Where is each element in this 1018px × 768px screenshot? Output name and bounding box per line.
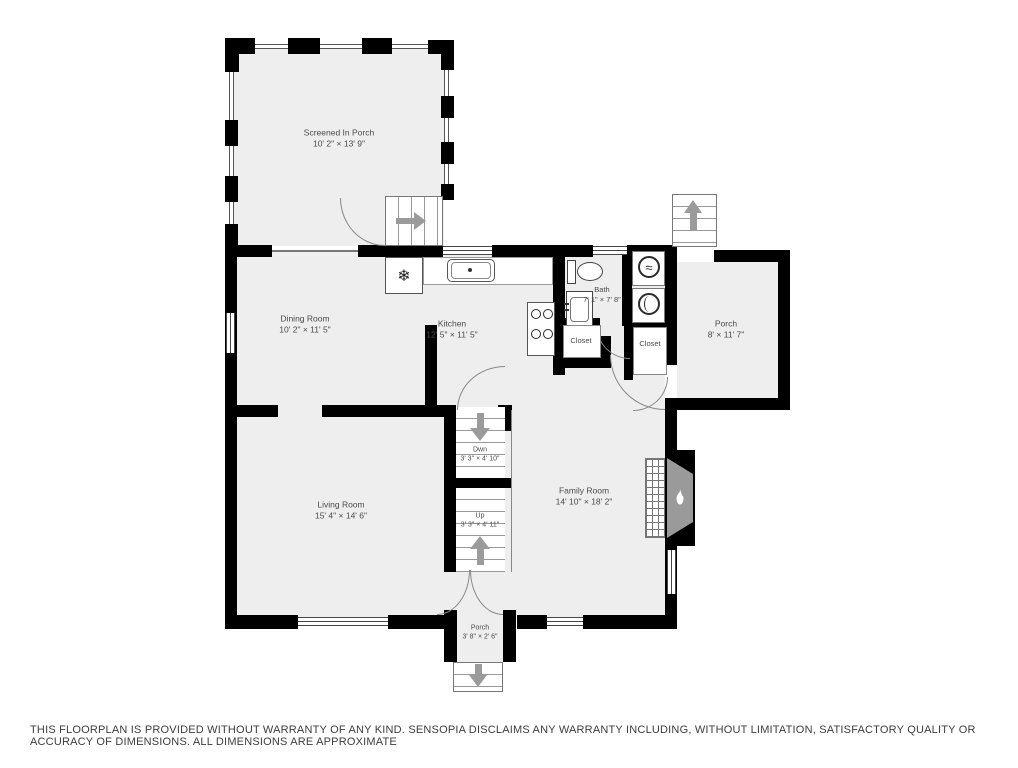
wall-side-porch-bottom [665,398,790,410]
bath-sink-faucet [564,303,569,305]
wall-front-porch-right [503,610,516,662]
window-family-bottom [547,617,583,626]
screen-wall-right [444,48,449,196]
wall-top-a [225,245,272,257]
wall-left-main [225,245,237,629]
porch-post [441,142,454,164]
opening-porch-dining [272,250,358,252]
wall-living-bottom-b [388,615,450,629]
wall-stairs-mid [444,478,512,488]
label-closet-right: Closet [639,339,660,349]
kitchen-sink-faucet [468,268,472,272]
wall-front-porch-left [444,610,457,662]
window-living-bottom [298,617,388,626]
porch-post [441,40,454,70]
label-living-room: Living Room15' 4" × 14' 6" [315,500,367,523]
porch-post [288,38,320,54]
porch-post [225,176,238,202]
flame-icon [673,489,687,507]
label-closet-left: Closet [570,336,591,346]
closet-right-interior [633,327,667,375]
label-side-porch: Porch8' × 11' 7" [708,319,745,342]
fireplace-hearth [645,458,665,538]
wall-family-bottom-a [517,615,547,629]
label-family-room: Family Room14' 10" × 18' 2" [556,486,613,509]
stove-burner [531,329,541,339]
wall-top-b [358,245,443,257]
toilet-tank [567,260,576,284]
wall-top-c [492,245,593,257]
wall-living-bottom-a [225,615,298,629]
line-stairs-family [511,410,512,572]
bath-sink-faucet [564,309,569,311]
label-stairs-down: Dwn3' 3" × 4' 10" [461,446,500,465]
porch-post [225,38,239,72]
window-dining-left [226,313,235,353]
wall-side-porch-right [778,250,790,410]
wall-bath-laundry [622,248,632,326]
porch-post [225,120,238,146]
label-front-porch: Porch3' 8" × 2' 6" [462,624,497,643]
window-kitchen [443,246,492,255]
wall-stairs-left [444,405,456,572]
stove-burner [543,309,553,319]
window-bath [593,246,627,255]
wall-family-bottom-b [583,615,677,629]
disclaimer-text: THIS FLOORPLAN IS PROVIDED WITHOUT WARRA… [30,724,1000,748]
stove-burner [543,329,553,339]
window-family-right [667,550,676,594]
screen-wall-top [238,44,430,49]
washer-icon: ≈ [638,256,660,278]
toilet-bowl [577,262,603,281]
label-dining-room: Dining Room10' 2" × 11' 5" [279,314,330,337]
label-stairs-up: Up3' 3" × 4' 11" [461,512,499,531]
floorplan-canvas: ❄ ≈ Screened In Porch10' 2" × 13' 9" Din… [0,0,1018,768]
wall-dining-living-a [225,405,278,417]
porch-post [441,96,454,118]
label-bath: Bath7' 1" × 7' 8" [583,285,621,305]
dryer-icon [638,293,660,315]
porch-post [362,38,392,54]
label-kitchen: Kitchen12' 5" × 11' 5" [426,319,477,342]
stove-burner [531,309,541,319]
label-screened-porch: Screened In Porch10' 2" × 13' 9" [304,128,374,151]
fridge-icon: ❄ [385,257,423,294]
